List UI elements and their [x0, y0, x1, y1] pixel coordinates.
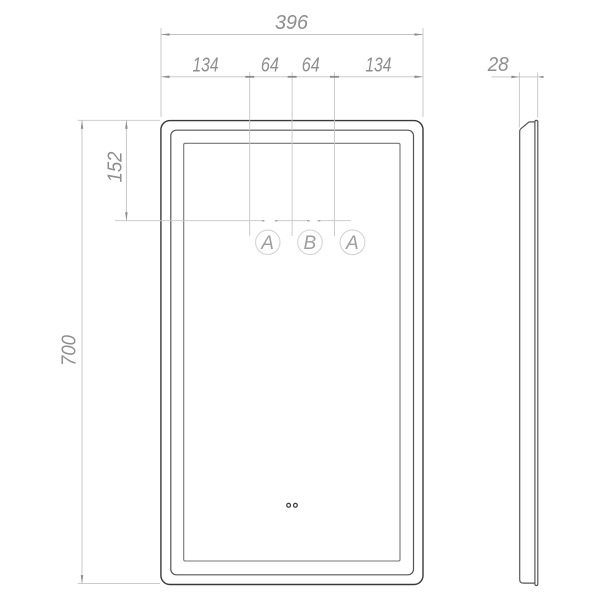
svg-text:134: 134: [365, 55, 391, 77]
svg-text:152: 152: [105, 152, 127, 183]
svg-text:B: B: [303, 233, 316, 254]
svg-text:134: 134: [193, 55, 219, 77]
svg-text:28: 28: [487, 54, 509, 76]
svg-text:A: A: [260, 233, 274, 254]
svg-text:A: A: [345, 233, 359, 254]
svg-text:64: 64: [302, 55, 320, 77]
svg-text:64: 64: [261, 55, 279, 77]
svg-text:396: 396: [275, 12, 309, 34]
svg-text:700: 700: [59, 335, 81, 366]
